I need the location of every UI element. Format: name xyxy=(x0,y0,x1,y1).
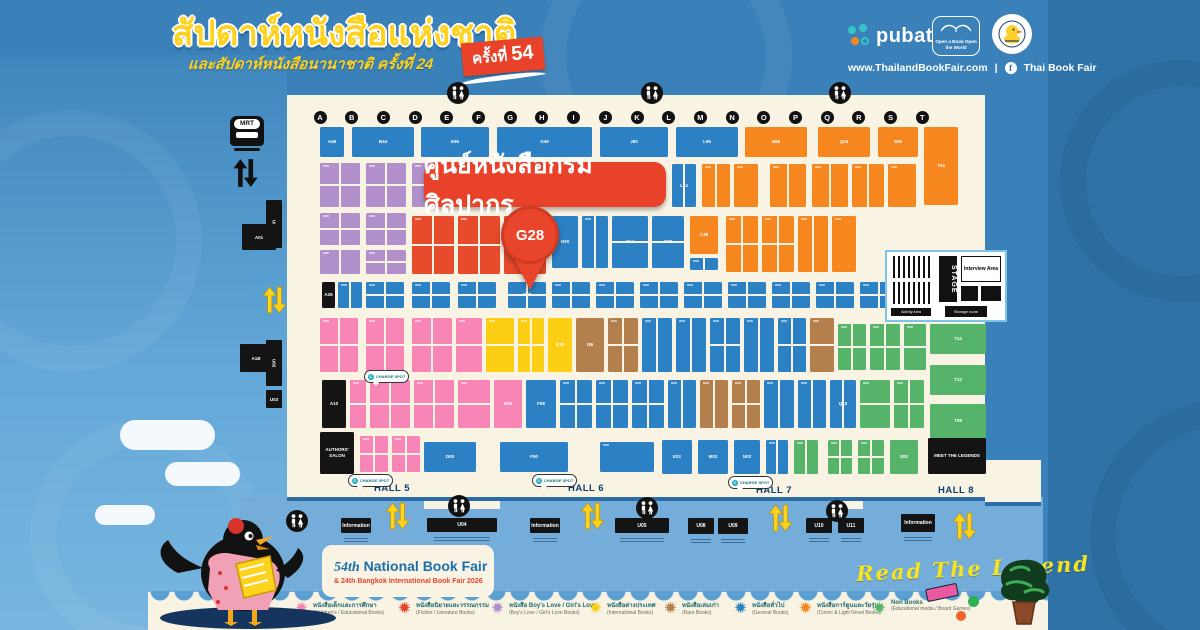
booth[interactable] xyxy=(412,216,454,274)
booth[interactable] xyxy=(320,318,358,372)
booth[interactable] xyxy=(816,282,854,308)
booth-s02[interactable]: S02 xyxy=(890,440,918,474)
badge-prefix: ครั้งที่ xyxy=(471,48,508,68)
pubat-dots-icon xyxy=(848,24,870,48)
booth[interactable] xyxy=(486,318,514,372)
legend-swatch-icon xyxy=(397,600,412,620)
booth[interactable] xyxy=(668,380,696,428)
booth-label: N02 xyxy=(742,453,752,461)
interview-area-label: Interview Area xyxy=(961,256,1001,282)
escalator-arrows-icon xyxy=(580,502,604,530)
ball-prop xyxy=(956,611,966,621)
legend-label-english: (General Books) xyxy=(752,610,788,616)
booth-e02[interactable]: E02 xyxy=(662,440,692,474)
column-letter-c: C xyxy=(377,111,390,124)
booth-s59[interactable]: S59 xyxy=(878,127,918,157)
floorplan-hall8-wing xyxy=(985,460,1041,504)
booth-label: S02 xyxy=(899,453,909,461)
booth-l95[interactable]: L95 xyxy=(676,127,738,157)
legend-label-thai: หนังสือต่างประเทศ xyxy=(607,600,656,610)
event-title-text: National Book Fair xyxy=(364,558,488,574)
booth-label: A46 xyxy=(327,138,337,146)
booth[interactable] xyxy=(690,258,718,270)
booth-label: Q10 xyxy=(838,400,849,408)
booth[interactable] xyxy=(764,380,794,428)
booth-label: E02 xyxy=(672,453,682,461)
booth[interactable] xyxy=(810,318,834,372)
booth-q44[interactable]: Q44 xyxy=(818,127,870,157)
booth-c36[interactable]: C36 xyxy=(690,216,718,254)
booth[interactable] xyxy=(858,440,884,474)
facebook-icon[interactable]: f xyxy=(1005,62,1017,74)
legend-label-english: (Boy's Love / Girl's Love Books) xyxy=(509,610,596,616)
booth-a10[interactable]: A10 xyxy=(322,380,346,428)
booth-n02[interactable]: N02 xyxy=(734,440,760,474)
booth[interactable] xyxy=(726,216,758,272)
legend-item-2: หนังสือ Boy's Love / Girl's Love (Boy's … xyxy=(490,600,596,620)
legend-label-english: (International Books) xyxy=(607,610,656,616)
booth-label: K33 xyxy=(555,341,565,349)
booth[interactable] xyxy=(366,213,406,245)
open-a-book-logo: Open a Book Open the World xyxy=(932,16,980,56)
legend-label-thai: หนังสือทั่วไป xyxy=(752,600,788,610)
booth[interactable] xyxy=(778,318,806,372)
pubat-logo: pubat xyxy=(848,24,933,48)
booth[interactable] xyxy=(632,380,664,428)
legend-swatch-icon xyxy=(733,600,748,620)
booth-t08[interactable]: T08 xyxy=(930,404,986,438)
charge-spot-badge: CCHARGE SPOT xyxy=(532,474,577,487)
booth[interactable] xyxy=(860,380,890,428)
booth-label: L44 xyxy=(679,182,689,190)
booth-l44[interactable]: L44 xyxy=(672,164,696,207)
booth[interactable] xyxy=(320,213,360,245)
legend-swatch-icon xyxy=(663,600,678,620)
ball-prop xyxy=(968,596,979,607)
booth[interactable] xyxy=(700,380,728,428)
booth[interactable] xyxy=(366,282,404,308)
booth-t04[interactable]: T04 xyxy=(924,127,958,205)
column-letter-s: S xyxy=(884,111,897,124)
column-letter-a: A xyxy=(314,111,327,124)
booth[interactable] xyxy=(600,442,654,472)
booth[interactable] xyxy=(676,318,706,372)
booth[interactable] xyxy=(798,216,828,272)
restroom-icon xyxy=(641,82,663,104)
service-box-u04: U04 xyxy=(427,518,497,532)
website-url[interactable]: www.ThailandBookFair.com xyxy=(848,62,988,74)
column-letter-m: M xyxy=(694,111,707,124)
legend-label-thai: หนังสือเล่มเก่า xyxy=(682,600,719,610)
booth[interactable] xyxy=(832,216,856,272)
stage-block xyxy=(981,286,1001,301)
booth[interactable] xyxy=(888,164,916,207)
booth-t12[interactable]: T12 xyxy=(930,365,986,395)
mrt-station-icon: MRT xyxy=(228,116,266,151)
booth-label: T14 xyxy=(953,335,963,343)
service-box-a01: A01 xyxy=(242,224,276,250)
booth-label: A10 xyxy=(329,400,339,408)
legend-swatch-icon xyxy=(588,600,603,620)
column-letter-g: G xyxy=(504,111,517,124)
escalator-arrows-icon xyxy=(262,286,286,314)
restroom-icon xyxy=(448,495,470,517)
booth-label: M02 xyxy=(708,453,719,461)
booth-label: D00 xyxy=(445,453,455,461)
duck-icon xyxy=(998,20,1026,48)
service-box-u08: U08 xyxy=(688,518,714,534)
booth-label: F00 xyxy=(529,453,539,461)
booth[interactable] xyxy=(320,163,360,207)
pubat-label: pubat xyxy=(876,25,933,48)
booth[interactable] xyxy=(734,164,758,207)
restroom-icon xyxy=(829,82,851,104)
booth-label: F08 xyxy=(536,400,546,408)
booth-label: AUTHORS' SALON xyxy=(320,446,354,459)
legend-label-thai: หนังสือ Boy's Love / Girl's Love xyxy=(509,600,596,610)
facebook-label[interactable]: Thai Book Fair xyxy=(1024,62,1097,74)
booth[interactable] xyxy=(894,380,924,428)
escalator-arrows-icon xyxy=(232,158,258,193)
booth[interactable] xyxy=(710,318,740,372)
legend-item-6: หนังสือการ์ตูนและวัยรุ่น (Comic & Light … xyxy=(798,600,881,620)
stage-area: STAGE Interview Area Activity Area Stora… xyxy=(885,250,1007,322)
booth[interactable] xyxy=(412,318,452,372)
column-letter-d: D xyxy=(409,111,422,124)
legend-label-english: (Fiction / Literature Books) xyxy=(416,610,489,616)
booth-meet-the-legends[interactable]: MEET THE LEGENDS xyxy=(928,438,986,474)
open-book-icon xyxy=(939,20,973,34)
booth-t14[interactable]: T14 xyxy=(930,324,986,354)
booth-k33[interactable]: K33 xyxy=(548,318,572,372)
booth[interactable] xyxy=(828,440,852,474)
page-subtitle: และสัปดาห์หนังสือนานาชาติ ครั้งที่ 24 xyxy=(187,52,435,76)
booth[interactable] xyxy=(798,380,826,428)
booth-q10[interactable]: Q10 xyxy=(830,380,856,428)
booth[interactable] xyxy=(852,164,884,207)
legend-swatch-icon xyxy=(490,600,505,620)
booth[interactable] xyxy=(770,164,806,207)
storage-room-label: Storage room xyxy=(945,306,987,317)
booth-label: I36 xyxy=(586,341,594,349)
booth-m02[interactable]: M02 xyxy=(698,440,728,474)
edition-badge: ครั้งที่ 54 xyxy=(461,37,545,77)
booth[interactable] xyxy=(794,440,818,474)
booth[interactable] xyxy=(640,282,678,308)
column-letter-n: N xyxy=(726,111,739,124)
column-letter-j: J xyxy=(599,111,612,124)
service-box-u05: U05 xyxy=(615,518,669,533)
escalator-arrows-icon xyxy=(385,502,409,530)
booth[interactable] xyxy=(732,380,760,428)
legend-item-4: หนังสือเล่มเก่า (Rare Books) xyxy=(663,600,719,620)
booth[interactable] xyxy=(366,318,404,372)
booth-label: L95 xyxy=(702,138,712,146)
booth[interactable] xyxy=(366,163,406,207)
cloud-decor xyxy=(165,462,240,486)
booth-label: K32 xyxy=(663,238,673,246)
booth-label: S59 xyxy=(893,138,903,146)
booth-label: Q44 xyxy=(839,138,850,146)
booth[interactable] xyxy=(414,380,454,428)
booth[interactable] xyxy=(702,164,730,207)
service-box-information: Information xyxy=(530,518,560,533)
column-letter-p: P xyxy=(789,111,802,124)
restroom-icon xyxy=(636,497,658,519)
audience-seats xyxy=(893,282,931,304)
booth-label: C14 xyxy=(625,238,635,246)
booth-f08[interactable]: F08 xyxy=(526,380,556,428)
booth-e06[interactable]: E06 xyxy=(494,380,522,428)
event-title: 54th National Book Fair xyxy=(334,558,494,576)
highlight-callout: ศูนย์หนังสือกรมศิลปากร xyxy=(424,162,666,207)
audience-seats xyxy=(893,256,931,278)
booth[interactable] xyxy=(596,380,628,428)
booth[interactable] xyxy=(608,318,638,372)
booth-f00[interactable]: F00 xyxy=(500,442,568,472)
booth[interactable] xyxy=(456,318,482,372)
column-letter-i: I xyxy=(567,111,580,124)
booth[interactable] xyxy=(870,324,900,370)
escalator-arrows-icon xyxy=(768,504,792,532)
hall-edge-line xyxy=(985,502,1041,506)
booth[interactable] xyxy=(812,164,848,207)
service-box-u03: U03 xyxy=(266,390,282,408)
booth-label: T04 xyxy=(936,162,946,170)
service-box-a1b: A1B xyxy=(240,344,272,372)
legend-item-1: หนังสือนิยายและวรรณกรรม (Fiction / Liter… xyxy=(397,600,489,620)
booth[interactable] xyxy=(838,324,866,370)
booth[interactable] xyxy=(684,282,722,308)
booth[interactable] xyxy=(744,318,774,372)
booth-label: B44 xyxy=(378,138,388,146)
booth-label: N65 xyxy=(771,138,781,146)
charge-spot-badge: CCHARGE SPOT xyxy=(728,476,773,489)
booth-d00[interactable]: D00 xyxy=(424,442,476,472)
booth[interactable] xyxy=(596,282,634,308)
booth-n65[interactable]: N65 xyxy=(745,127,807,157)
booth[interactable] xyxy=(360,436,388,472)
mrt-label: MRT xyxy=(234,119,260,129)
booth-label: A26 xyxy=(323,291,333,299)
charge-spot-badge: CCHARGE SPOT xyxy=(364,370,409,383)
booth[interactable] xyxy=(412,282,450,308)
open-book-label: Open a Book Open the World xyxy=(933,39,979,50)
booth-i36[interactable]: I36 xyxy=(576,318,604,372)
booth[interactable] xyxy=(370,380,410,428)
booth[interactable] xyxy=(350,380,366,428)
pin-label: G28 xyxy=(501,206,559,264)
event-subtitle: & 24th Bangkok International Book Fair 2… xyxy=(334,578,494,585)
restroom-icon xyxy=(826,500,848,522)
booth[interactable] xyxy=(458,216,500,274)
column-letter-f: F xyxy=(472,111,485,124)
booth-label: E06 xyxy=(503,400,513,408)
legend-item-3: หนังสือต่างประเทศ (International Books) xyxy=(588,600,656,620)
booth-authors-salon[interactable]: AUTHORS' SALON xyxy=(320,432,354,474)
booth[interactable] xyxy=(728,282,766,308)
cloud-decor xyxy=(95,505,155,525)
booth[interactable] xyxy=(458,282,496,308)
booth[interactable] xyxy=(458,380,490,428)
crow-mascot xyxy=(148,518,348,630)
booth-a46[interactable]: A46 xyxy=(320,127,344,157)
legend-label-thai: หนังสือนิยายและวรรณกรรม xyxy=(416,600,489,610)
service-box-u09: U09 xyxy=(718,518,748,534)
plant-pot-decor xyxy=(995,558,1053,630)
booth[interactable] xyxy=(338,282,362,308)
charge-spot-badge: CCHARGE SPOT xyxy=(348,474,393,487)
column-letter-q: Q xyxy=(821,111,834,124)
legend-swatch-icon xyxy=(798,600,813,620)
booth[interactable] xyxy=(560,380,592,428)
stage-block xyxy=(961,286,978,301)
hall-label-hall-8: HALL 8 xyxy=(938,485,974,496)
legend-label-english: (Rare Books) xyxy=(682,610,719,616)
legend-item-5: หนังสือทั่วไป (General Books) xyxy=(733,600,788,620)
legend-swatch-icon xyxy=(872,600,887,620)
booth-label: T08 xyxy=(953,417,963,425)
stage-label: STAGE xyxy=(939,256,957,302)
booth[interactable] xyxy=(762,216,794,272)
badge-number: 54 xyxy=(510,41,534,65)
booth-a26[interactable]: A26 xyxy=(322,282,335,308)
restroom-icon xyxy=(447,82,469,104)
booth[interactable] xyxy=(766,440,788,474)
separator: | xyxy=(995,62,998,74)
booth-label: T12 xyxy=(953,376,963,384)
booth[interactable] xyxy=(320,250,360,274)
booth-label: MEET THE LEGENDS xyxy=(933,452,981,460)
booth-b44[interactable]: B44 xyxy=(352,127,414,157)
duck-mascot-badge xyxy=(992,14,1032,54)
cloud-decor xyxy=(120,420,215,450)
column-letter-t: T xyxy=(916,111,929,124)
escalator-arrows-icon xyxy=(952,512,976,540)
booth[interactable] xyxy=(518,318,544,372)
booth[interactable] xyxy=(642,318,672,372)
booth[interactable] xyxy=(772,282,810,308)
column-letter-k: K xyxy=(631,111,644,124)
activity-area-label: Activity Area xyxy=(891,308,931,316)
service-box-information: Information xyxy=(901,514,935,532)
location-pin[interactable]: G28 xyxy=(498,206,566,294)
booth[interactable] xyxy=(366,250,406,274)
website-row: www.ThailandBookFair.com | f Thai Book F… xyxy=(848,62,1097,74)
booth[interactable] xyxy=(904,324,926,370)
booth-label: C36 xyxy=(699,231,709,239)
book-fair-map-poster: { "header": { "title": "สัปดาห์หนังสือแห… xyxy=(0,0,1200,630)
booth[interactable] xyxy=(392,436,420,472)
